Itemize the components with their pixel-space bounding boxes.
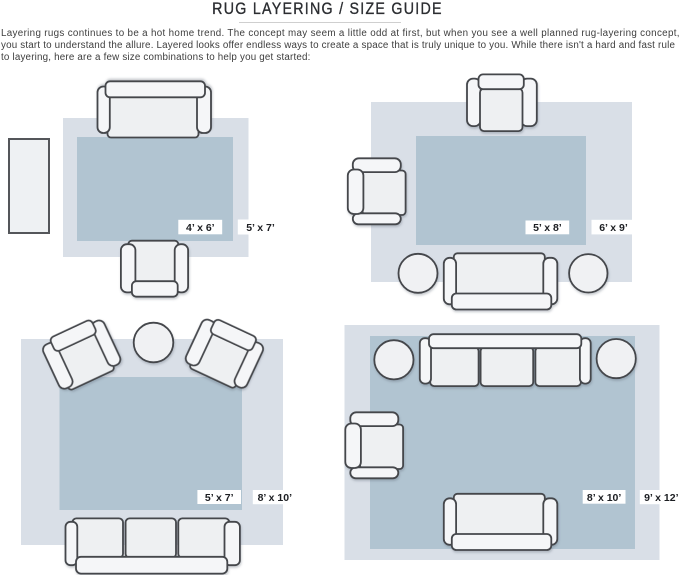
svg-text:9’ x 12’: 9’ x 12’ (644, 492, 679, 504)
svg-text:5’ x 8’: 5’ x 8’ (533, 222, 562, 234)
svg-text:8’ x 10’: 8’ x 10’ (258, 492, 293, 504)
svg-text:6’ x 9’: 6’ x 9’ (599, 222, 628, 234)
svg-text:5’ x 7’: 5’ x 7’ (205, 492, 234, 504)
svg-text:4’ x 6’: 4’ x 6’ (186, 222, 215, 234)
svg-text:5’ x 7’: 5’ x 7’ (246, 222, 275, 234)
svg-text:8’ x 10’: 8’ x 10’ (587, 492, 622, 504)
